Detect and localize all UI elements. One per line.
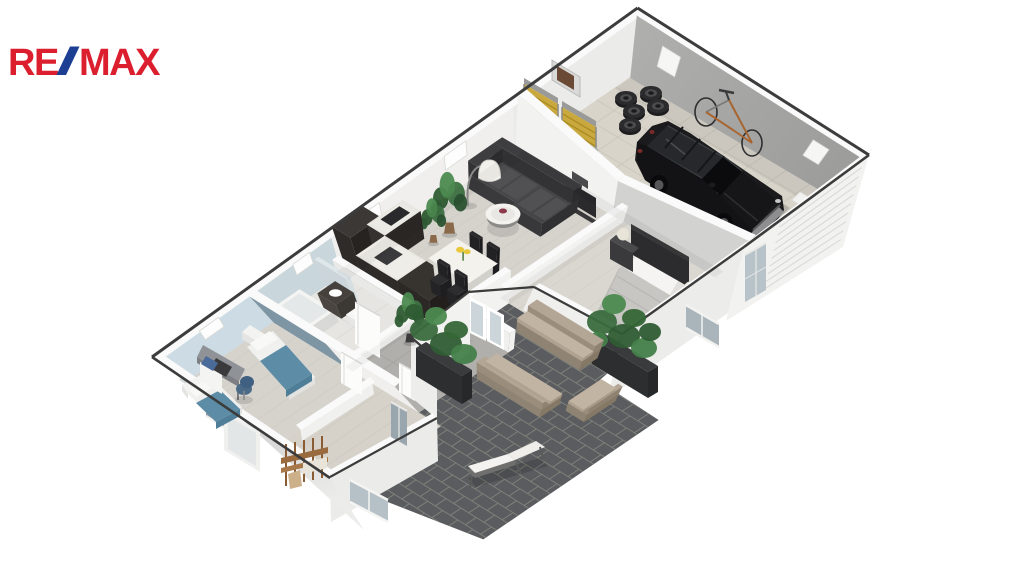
svg-text:MAX: MAX [79,42,161,84]
svg-text:RE: RE [8,42,58,84]
